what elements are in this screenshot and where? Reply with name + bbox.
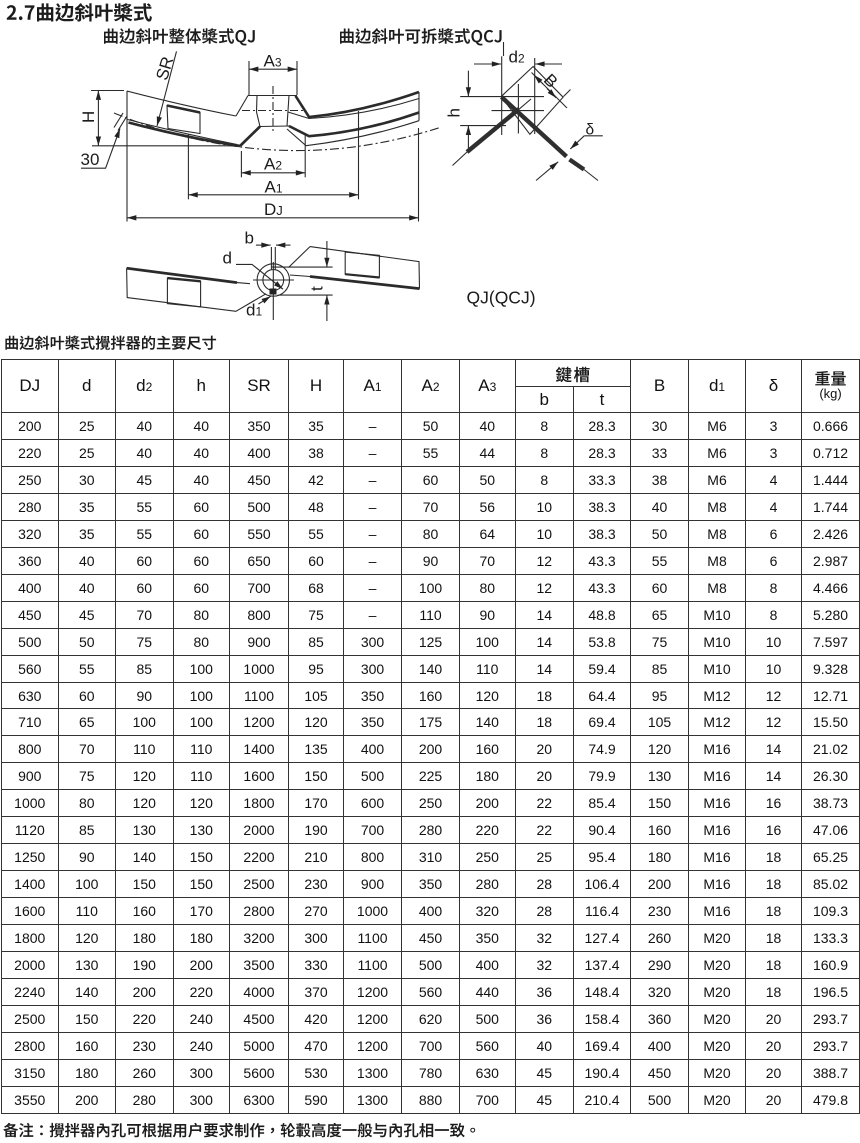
svg-text:B: B xyxy=(540,70,561,91)
svg-text:t: t xyxy=(308,286,327,291)
svg-text:δ: δ xyxy=(586,122,595,139)
svg-text:A3: A3 xyxy=(264,52,282,71)
svg-text:A1: A1 xyxy=(265,177,283,196)
svg-text:30: 30 xyxy=(81,150,100,169)
svg-text:H: H xyxy=(79,111,98,123)
svg-text:A2: A2 xyxy=(264,155,282,174)
svg-text:SR: SR xyxy=(152,54,177,82)
svg-text:b: b xyxy=(245,229,254,248)
svg-text:h: h xyxy=(445,108,464,117)
svg-text:QJ(QCJ): QJ(QCJ) xyxy=(467,288,536,308)
svg-text:d2: d2 xyxy=(509,48,525,67)
svg-text:DJ: DJ xyxy=(264,200,283,219)
svg-text:d: d xyxy=(223,249,232,268)
